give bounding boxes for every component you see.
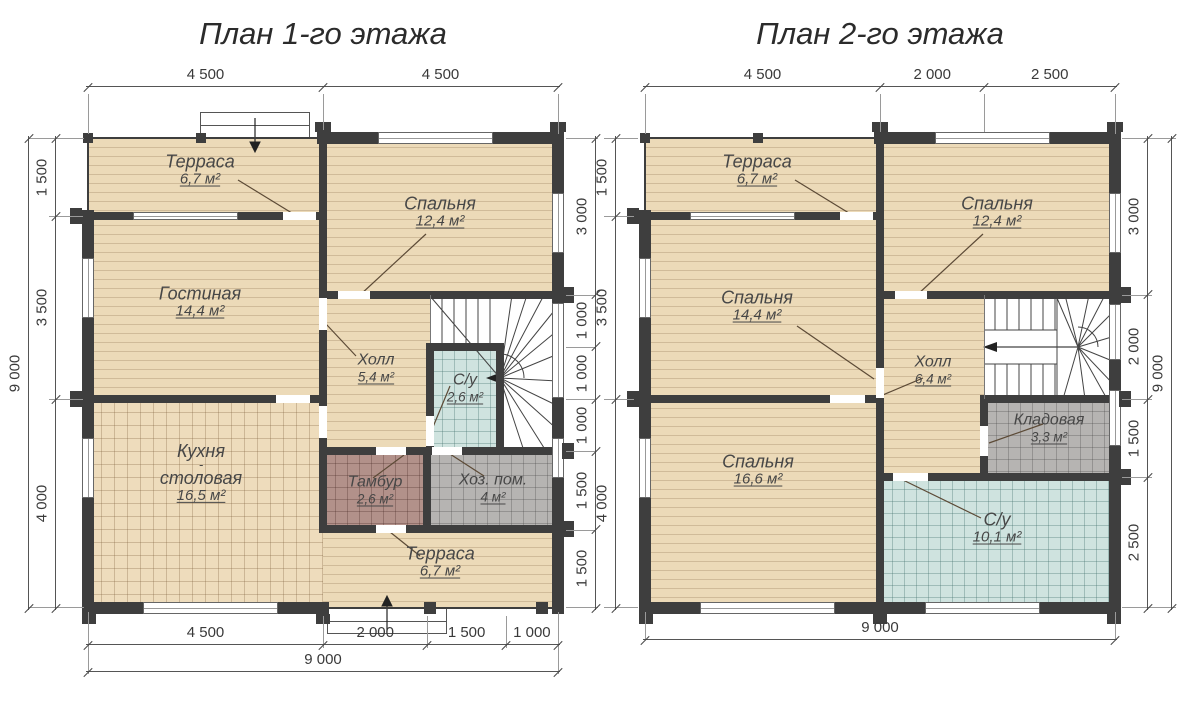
room-label-bedroom2: Спальня 14,4 м² — [721, 288, 793, 325]
dim-label: 1 000 — [574, 302, 591, 340]
wall — [319, 132, 327, 529]
dim-label: 1 000 — [574, 354, 591, 392]
window — [639, 438, 651, 498]
window — [143, 602, 278, 614]
window — [690, 212, 795, 220]
log-end — [562, 521, 574, 537]
dim-label: 9 000 — [304, 651, 342, 668]
plan1-dim-top: 4 500 4 500 — [88, 68, 558, 92]
extension-line — [645, 94, 646, 134]
door-opening — [893, 473, 928, 481]
extension-line — [88, 94, 89, 134]
dim-label: 2 500 — [1031, 66, 1069, 83]
room-label-utility: Хоз. пом. 4 м² — [459, 471, 527, 504]
dim-label: 3 000 — [1126, 198, 1143, 236]
log-end — [82, 614, 96, 624]
extension-line — [984, 94, 985, 132]
dim-label: 1 500 — [574, 550, 591, 588]
room-label-bedroom3: Спальня 16,6 м² — [722, 452, 794, 489]
plan1-dim-bottom: 4 500 2 000 1 500 1 000 — [88, 626, 558, 650]
room-label-wc2: С/у 10,1 м² — [973, 510, 1022, 547]
window — [700, 602, 835, 614]
door-opening — [876, 368, 884, 398]
window — [552, 193, 564, 253]
room-label-wc: С/у 2,6 м² — [447, 371, 483, 404]
wall — [319, 525, 558, 533]
room-label-tambour: Тамбур 2,6 м² — [348, 473, 403, 506]
railing-post — [83, 133, 93, 143]
door-opening — [426, 416, 434, 446]
dim-label: 1 000 — [513, 624, 551, 641]
window — [639, 258, 651, 318]
dim-label: 3 000 — [574, 198, 591, 236]
plan1-dim-left-total: 9 000 — [10, 138, 34, 608]
window — [925, 602, 1040, 614]
plan2-dim-top: 4 500 2 000 2 500 — [645, 68, 1115, 92]
dim-label: 1 000 — [574, 406, 591, 444]
room-bedroom3-floor — [645, 399, 880, 608]
plan1-dim-bottom-total: 9 000 — [88, 653, 558, 677]
dim-label: 2 000 — [356, 624, 394, 641]
door-opening — [376, 525, 406, 533]
room-label-hall: Холл 5,4 м² — [358, 351, 395, 384]
dim-label: 4 500 — [744, 66, 782, 83]
extension-line — [1115, 612, 1116, 640]
dim-label: 2 500 — [1126, 524, 1143, 562]
railing-post — [424, 602, 436, 614]
room-label-hall2: Холл 6,4 м² — [915, 353, 952, 386]
window — [1109, 193, 1121, 253]
door-opening — [338, 291, 370, 299]
window — [82, 258, 94, 318]
door-opening — [319, 406, 327, 438]
room-label-kitchen: Кухня - столовая 16,5 м² — [160, 441, 242, 505]
room-label-terrace-bottom: Терраса 6,7 м² — [405, 544, 474, 581]
door-opening — [980, 426, 988, 456]
room-label-bedroom1: Спальня 12,4 м² — [961, 194, 1033, 231]
dim-label: 4 000 — [34, 485, 51, 523]
terrace-railing — [323, 607, 558, 609]
dim-label: 1 500 — [1126, 419, 1143, 457]
railing-post — [196, 133, 206, 143]
dim-label: 2 000 — [1126, 328, 1143, 366]
extension-line — [880, 94, 881, 132]
extension-line — [323, 94, 324, 130]
dim-label: 4 500 — [187, 624, 225, 641]
floorplan-sheet: План 1-го этажа План 2-го этажа — [0, 0, 1200, 703]
dim-label: 9 000 — [861, 619, 899, 636]
plan1-dim-left: 1 500 3 500 4 000 — [37, 138, 61, 608]
room-label-terrace-top: Терраса 6,7 м² — [165, 152, 234, 189]
dim-label: 9 000 — [7, 354, 24, 392]
dim-label: 3 500 — [34, 289, 51, 327]
dim-label: 4 000 — [594, 485, 611, 523]
wall — [980, 395, 1121, 403]
dim-label: 2 000 — [913, 66, 951, 83]
door-opening — [319, 298, 327, 330]
door-opening — [376, 447, 406, 455]
room-label-living: Гостиная 14,4 м² — [159, 284, 241, 321]
dim-label: 9 000 — [1150, 354, 1167, 392]
extension-line — [558, 94, 559, 134]
entry-steps-top — [200, 112, 310, 138]
staircase-icon — [984, 295, 1115, 399]
door-opening — [432, 447, 462, 455]
stair-direction-arrow — [983, 342, 997, 352]
plan2-dim-left: 1 500 3 500 4 000 — [597, 138, 621, 608]
window — [378, 132, 493, 144]
wall — [426, 343, 504, 351]
window — [1109, 304, 1121, 360]
extension-line — [1115, 94, 1116, 134]
stair-edge-line — [430, 295, 431, 343]
room-label-bedroom: Спальня 12,4 м² — [404, 194, 476, 231]
door-opening — [895, 291, 927, 299]
door-opening — [830, 395, 865, 403]
railing-post — [640, 133, 650, 143]
room-label-terrace2: Терраса 6,7 м² — [722, 152, 791, 189]
plan2-dim-bottom-total: 9 000 — [645, 621, 1115, 645]
dim-label: 1 500 — [594, 158, 611, 196]
railing-post — [753, 133, 763, 143]
plan1-title: План 1-го этажа — [199, 16, 447, 52]
door-opening — [283, 212, 316, 220]
plan1-drawing: Терраса 6,7 м² Спальня 12,4 м² Гостиная … — [88, 138, 558, 608]
wall — [496, 343, 504, 451]
terrace-railing — [87, 138, 89, 212]
terrace-railing — [644, 138, 646, 212]
dim-label: 1 500 — [448, 624, 486, 641]
dim-label: 1 500 — [34, 158, 51, 196]
dim-label: 1 500 — [574, 472, 591, 510]
plan2-drawing: Терраса 6,7 м² Спальня 12,4 м² Спальня 1… — [645, 138, 1115, 608]
window — [82, 438, 94, 498]
room-label-storage: Кладовая 3,3 м² — [1014, 411, 1085, 444]
window — [133, 212, 238, 220]
dim-label: 3 500 — [594, 289, 611, 327]
door-opening — [840, 212, 873, 220]
plan2-dim-right-total: 9 000 — [1153, 138, 1177, 608]
dim-label: 4 500 — [422, 66, 460, 83]
window — [552, 303, 564, 398]
dim-label: 4 500 — [187, 66, 225, 83]
stair-edge-line — [984, 295, 985, 399]
window — [935, 132, 1050, 144]
plan2-title: План 2-го этажа — [756, 16, 1004, 52]
wall — [423, 451, 431, 529]
railing-post — [536, 602, 548, 614]
door-opening — [276, 395, 310, 403]
